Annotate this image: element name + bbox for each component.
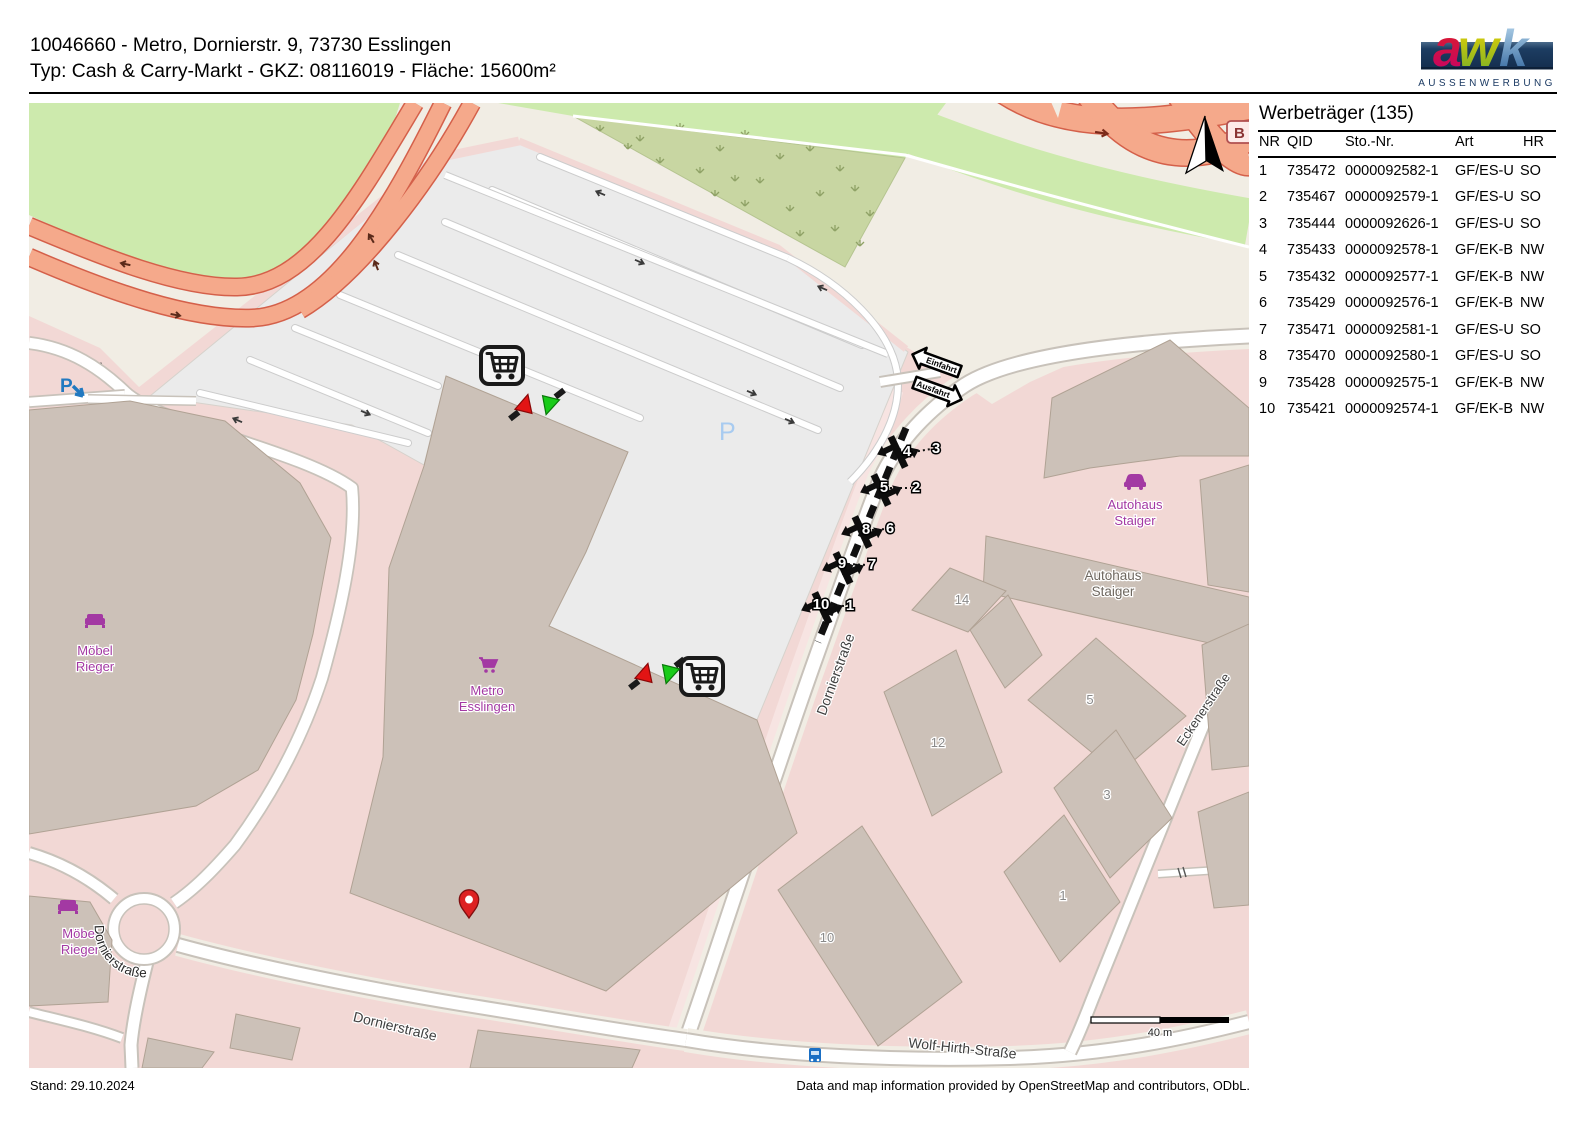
svg-text:3: 3	[1103, 787, 1110, 802]
svg-text:Staiger: Staiger	[1114, 513, 1156, 528]
svg-text:9: 9	[838, 555, 846, 572]
svg-text:10: 10	[813, 596, 830, 613]
svg-text:14: 14	[955, 592, 969, 607]
svg-text:P: P	[60, 376, 73, 397]
svg-text:w: w	[1458, 20, 1502, 78]
svg-text:Autohaus: Autohaus	[1084, 568, 1141, 583]
svg-text:Autohaus: Autohaus	[1108, 497, 1163, 512]
svg-text:Rieger: Rieger	[76, 659, 115, 674]
svg-text:P: P	[719, 418, 736, 446]
svg-text:8: 8	[862, 521, 870, 538]
svg-text:Möbel: Möbel	[77, 643, 113, 658]
svg-text:7: 7	[868, 556, 876, 573]
svg-text:1: 1	[1059, 888, 1066, 903]
svg-text:5: 5	[880, 479, 888, 496]
svg-text:12: 12	[931, 735, 945, 750]
svg-text:AUSSENWERBUNG: AUSSENWERBUNG	[1418, 78, 1556, 89]
svg-text:3: 3	[932, 440, 940, 457]
svg-text:Staiger: Staiger	[1092, 584, 1135, 599]
svg-text:40 m: 40 m	[1148, 1027, 1172, 1039]
svg-text:B 1: B 1	[1234, 125, 1249, 142]
svg-text:Metro: Metro	[470, 683, 503, 698]
svg-text:k: k	[1499, 20, 1531, 78]
svg-text:2: 2	[912, 479, 920, 496]
svg-text:5: 5	[1086, 692, 1093, 707]
svg-text:6: 6	[886, 520, 894, 537]
svg-text:10: 10	[820, 930, 834, 945]
svg-text:Esslingen: Esslingen	[459, 699, 515, 714]
svg-text:4: 4	[903, 443, 912, 460]
svg-text:1: 1	[846, 597, 854, 614]
svg-text:Rieger: Rieger	[61, 942, 100, 957]
